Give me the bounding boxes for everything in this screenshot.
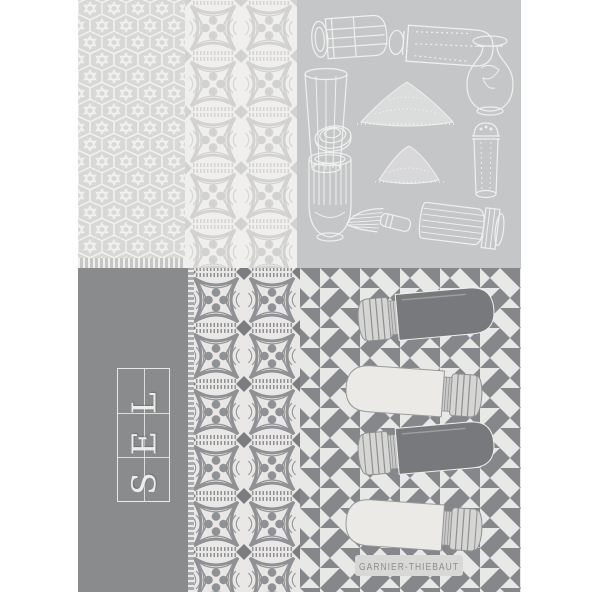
sel-title-panel: SEL xyxy=(78,268,188,592)
sel-letter-grid: SEL xyxy=(117,368,170,502)
pinwheel-shakers-panel: GARNIER-THIEBAUT xyxy=(300,268,521,592)
pinwheel-shakers-graphic: GARNIER-THIEBAUT xyxy=(300,268,521,592)
brand-badge: GARNIER-THIEBAUT xyxy=(355,555,463,576)
salt-illustrations-graphic xyxy=(297,0,521,268)
hexagon-pattern-graphic xyxy=(78,0,185,268)
lace-border-strip xyxy=(188,268,194,592)
product-photo-canvas: SEL xyxy=(0,0,600,600)
tile-column-light-graphic xyxy=(185,0,297,268)
tall-shaker-icon xyxy=(472,123,500,198)
hexagon-pattern-panel xyxy=(78,0,185,268)
tea-towel: SEL xyxy=(78,0,521,592)
salt-pile-small-icon xyxy=(375,146,445,184)
lace-border-strip xyxy=(78,258,185,268)
tile-column-light-panel xyxy=(185,0,297,268)
ridged-shaker-lying-icon xyxy=(418,200,506,250)
tile-column-dark-panel xyxy=(188,268,300,592)
salt-whisk-icon xyxy=(346,201,412,241)
faceted-glass-icon xyxy=(305,69,347,173)
salt-pile-large-icon xyxy=(357,82,457,126)
tile-column-dark-graphic xyxy=(188,268,300,592)
sel-title: SEL xyxy=(127,375,160,495)
ribbed-shaker-icon xyxy=(309,153,351,242)
salt-illustrations-panel xyxy=(297,0,521,268)
brand-label: GARNIER-THIEBAUT xyxy=(359,562,459,573)
salt-mill-lying-icon xyxy=(310,15,388,60)
glass-carafe-shaker-icon xyxy=(467,36,513,115)
